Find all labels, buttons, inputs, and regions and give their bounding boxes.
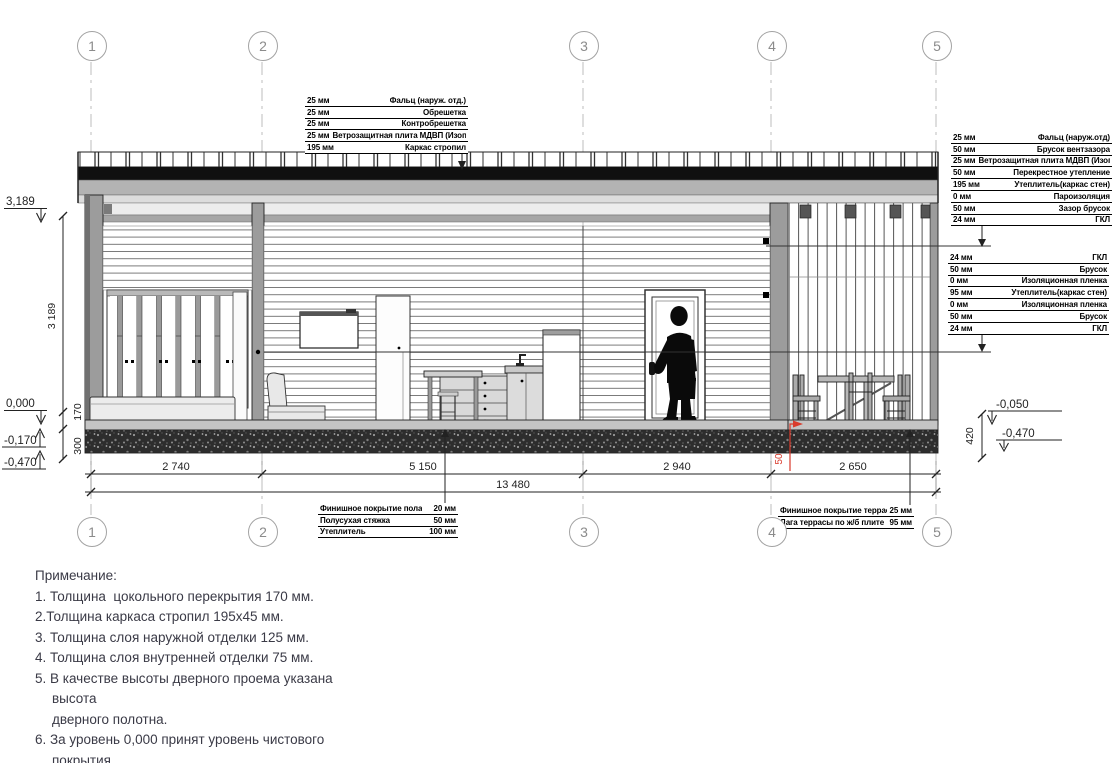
callout-row: 25 ммКонтробрешетка: [305, 119, 468, 131]
dimension-vertical-right: 420: [964, 410, 986, 462]
callout-row: Лага террасы по ж/б плите95 мм: [778, 517, 914, 529]
svg-text:50: 50: [774, 453, 785, 465]
callout-exterior-wall: 25 ммФальц (наруж.отд) 50 ммБрусок вентз…: [951, 132, 1112, 226]
callout-row: 50 ммПерекрестное утепление: [951, 167, 1112, 179]
svg-text:-0,470: -0,470: [1002, 428, 1035, 440]
callout-roof: 25 ммФальц (наруж. отд.) 25 ммОбрешетка …: [305, 95, 468, 154]
section-drawing-sheet: 3,189 0,000 -0,170 -0,470 -0,050: [0, 0, 1113, 763]
note-item: 2.Толщина каркаса стропил 195х45 мм.: [35, 607, 380, 628]
svg-text:3 189: 3 189: [46, 303, 58, 329]
svg-text:-0,050: -0,050: [996, 399, 1029, 411]
callout-row: 95 ммУтеплитель(каркас стен): [948, 287, 1109, 299]
ceiling: [103, 203, 770, 222]
notes-block: Примечание: 1. Толщина цокольного перекр…: [35, 566, 380, 763]
callout-row: 25 ммВетрозащитная плита МДВП (Изоплат): [305, 130, 468, 142]
callout-row: 25 ммФальц (наруж. отд.): [305, 95, 468, 107]
dimension-vertical-left: 3 189 170 300: [46, 212, 84, 463]
callout-partition-wall: 24 ммГКЛ 50 ммБрусок 0 ммИзоляционная пл…: [948, 252, 1109, 335]
callout-row: 50 ммБрусок: [948, 264, 1109, 276]
svg-text:170: 170: [72, 403, 84, 421]
svg-text:0,000: 0,000: [6, 398, 35, 410]
callout-row: 25 ммВетрозащитная плита МДВП (Изоплат): [951, 156, 1112, 168]
callout-row: 25 ммФальц (наруж.отд): [951, 132, 1112, 144]
svg-text:3,189: 3,189: [6, 196, 35, 208]
svg-text:420: 420: [964, 427, 976, 445]
grid-bubble-2-bottom: 2: [248, 517, 278, 547]
grid-bubble-5-bottom: 5: [922, 517, 952, 547]
grid-bubble-2-top: 2: [248, 31, 278, 61]
level-marker-minus470-right: -0,470: [996, 428, 1062, 451]
callout-terrace: Финишное покрытие террасы25 мм Лага терр…: [778, 505, 914, 529]
callout-row: 195 ммУтеплитель(каркас стен): [951, 179, 1112, 191]
tv: [300, 309, 358, 348]
grid-bubble-3-top: 3: [569, 31, 599, 61]
note-item: 6. За уровень 0,000 принят уровень чисто…: [35, 730, 380, 763]
callout-row: 24 ммГКЛ: [948, 323, 1109, 335]
svg-text:5 150: 5 150: [409, 461, 437, 473]
column: [543, 330, 580, 425]
note-item: 3. Толщина слоя наружной отделки 125 мм.: [35, 628, 380, 649]
callout-row: 0 ммИзоляционная пленка: [948, 276, 1109, 288]
callout-row: 50 ммБрусок: [948, 311, 1109, 323]
svg-text:13 480: 13 480: [496, 479, 530, 491]
level-marker-minus470-left: -0,470: [2, 451, 46, 469]
grid-bubble-1-top: 1: [77, 31, 107, 61]
callout-row: Полусухая стяжка50 мм: [318, 515, 458, 527]
level-marker-terrace: -0,050: [988, 399, 1063, 424]
callout-row: 0 ммИзоляционная пленка: [948, 299, 1109, 311]
level-marker-minus170: -0,170: [2, 429, 46, 447]
callout-row: Финишное покрытие террасы25 мм: [778, 505, 914, 517]
note-item: 5. В качестве высоты дверного проема ука…: [35, 669, 380, 731]
callout-row: 50 ммЗазор брусок: [951, 203, 1112, 215]
svg-text:2 650: 2 650: [839, 461, 867, 473]
callout-row: 195 ммКаркас стропил: [305, 142, 468, 154]
tall-cabinet: [376, 296, 410, 425]
grid-bubble-4-bottom: 4: [757, 517, 787, 547]
level-marker-zero: 0,000: [4, 398, 47, 424]
svg-text:-0,470: -0,470: [4, 457, 37, 469]
dimension-horizontal: 2 740 5 150 2 940 2 650 13 480: [85, 461, 941, 496]
grid-bubble-5-top: 5: [922, 31, 952, 61]
callout-row: 50 ммБрусок вентзазора: [951, 144, 1112, 156]
callout-row: Финишное покрытие пола20 мм: [318, 503, 458, 515]
svg-text:2 940: 2 940: [663, 461, 691, 473]
svg-text:2 740: 2 740: [162, 461, 190, 473]
level-marker-roof: 3,189: [4, 196, 47, 222]
grid-bubble-4-top: 4: [757, 31, 787, 61]
callout-row: 24 ммГКЛ: [948, 252, 1109, 264]
callout-row: 0 ммПароизоляция: [951, 191, 1112, 203]
svg-text:300: 300: [72, 437, 84, 455]
callout-row: 25 ммОбрешетка: [305, 107, 468, 119]
callout-row: Утеплитель100 мм: [318, 527, 458, 539]
note-item: 4. Толщина слоя внутренней отделки 75 мм…: [35, 648, 380, 669]
notes-title: Примечание:: [35, 566, 380, 587]
note-item: 1. Толщина цокольного перекрытия 170 мм.: [35, 587, 380, 608]
roof: [78, 152, 938, 203]
grid-bubble-3-bottom: 3: [569, 517, 599, 547]
svg-text:-0,170: -0,170: [4, 435, 37, 447]
floor-slab: [85, 420, 938, 453]
grid-bubble-1-bottom: 1: [77, 517, 107, 547]
callout-row: 24 ммГКЛ: [951, 215, 1112, 227]
callout-floor: Финишное покрытие пола20 мм Полусухая ст…: [318, 503, 458, 538]
